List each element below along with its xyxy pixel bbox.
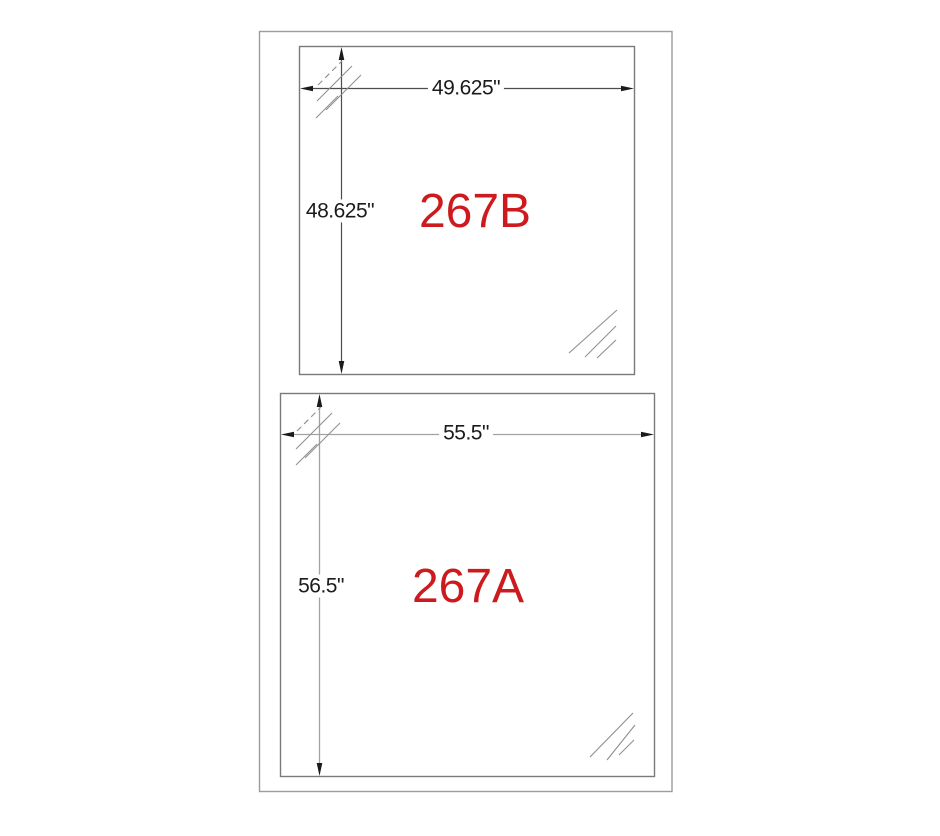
- dim-arrow-up-icon: [317, 394, 323, 407]
- dim-arrow-down-icon: [317, 763, 323, 776]
- dim-arrow-left-icon: [300, 86, 313, 92]
- dim-arrow-right-icon: [621, 86, 634, 92]
- panel-267b-height-dimension: 48.625": [302, 199, 378, 222]
- panel-267b-width-dimension: 49.625": [428, 76, 504, 99]
- panel-267b-label: 267B: [419, 188, 531, 236]
- outer-frame-rect: [260, 32, 673, 792]
- panel-267b-glass-hatch-bottomright-icon: [569, 310, 617, 358]
- drawing-linework: [0, 0, 940, 836]
- dim-arrow-down-icon: [339, 361, 345, 374]
- panel-267b-glass-hatch-topleft-icon: [316, 61, 361, 118]
- dim-arrow-up-icon: [339, 47, 345, 60]
- drawing-canvas: 49.625" 48.625" 267B 55.5" 56.5" 267A: [0, 0, 940, 836]
- panel-267a-width-dimension: 55.5": [439, 421, 493, 444]
- panel-267a-label: 267A: [412, 563, 524, 611]
- panel-267a-glass-hatch-bottomright-icon: [590, 713, 635, 760]
- panel-267a-glass-hatch-topleft-icon: [296, 407, 340, 465]
- dim-arrow-left-icon: [281, 432, 294, 438]
- dim-arrow-right-icon: [641, 432, 654, 438]
- panel-267a-height-dimension: 56.5": [294, 574, 348, 597]
